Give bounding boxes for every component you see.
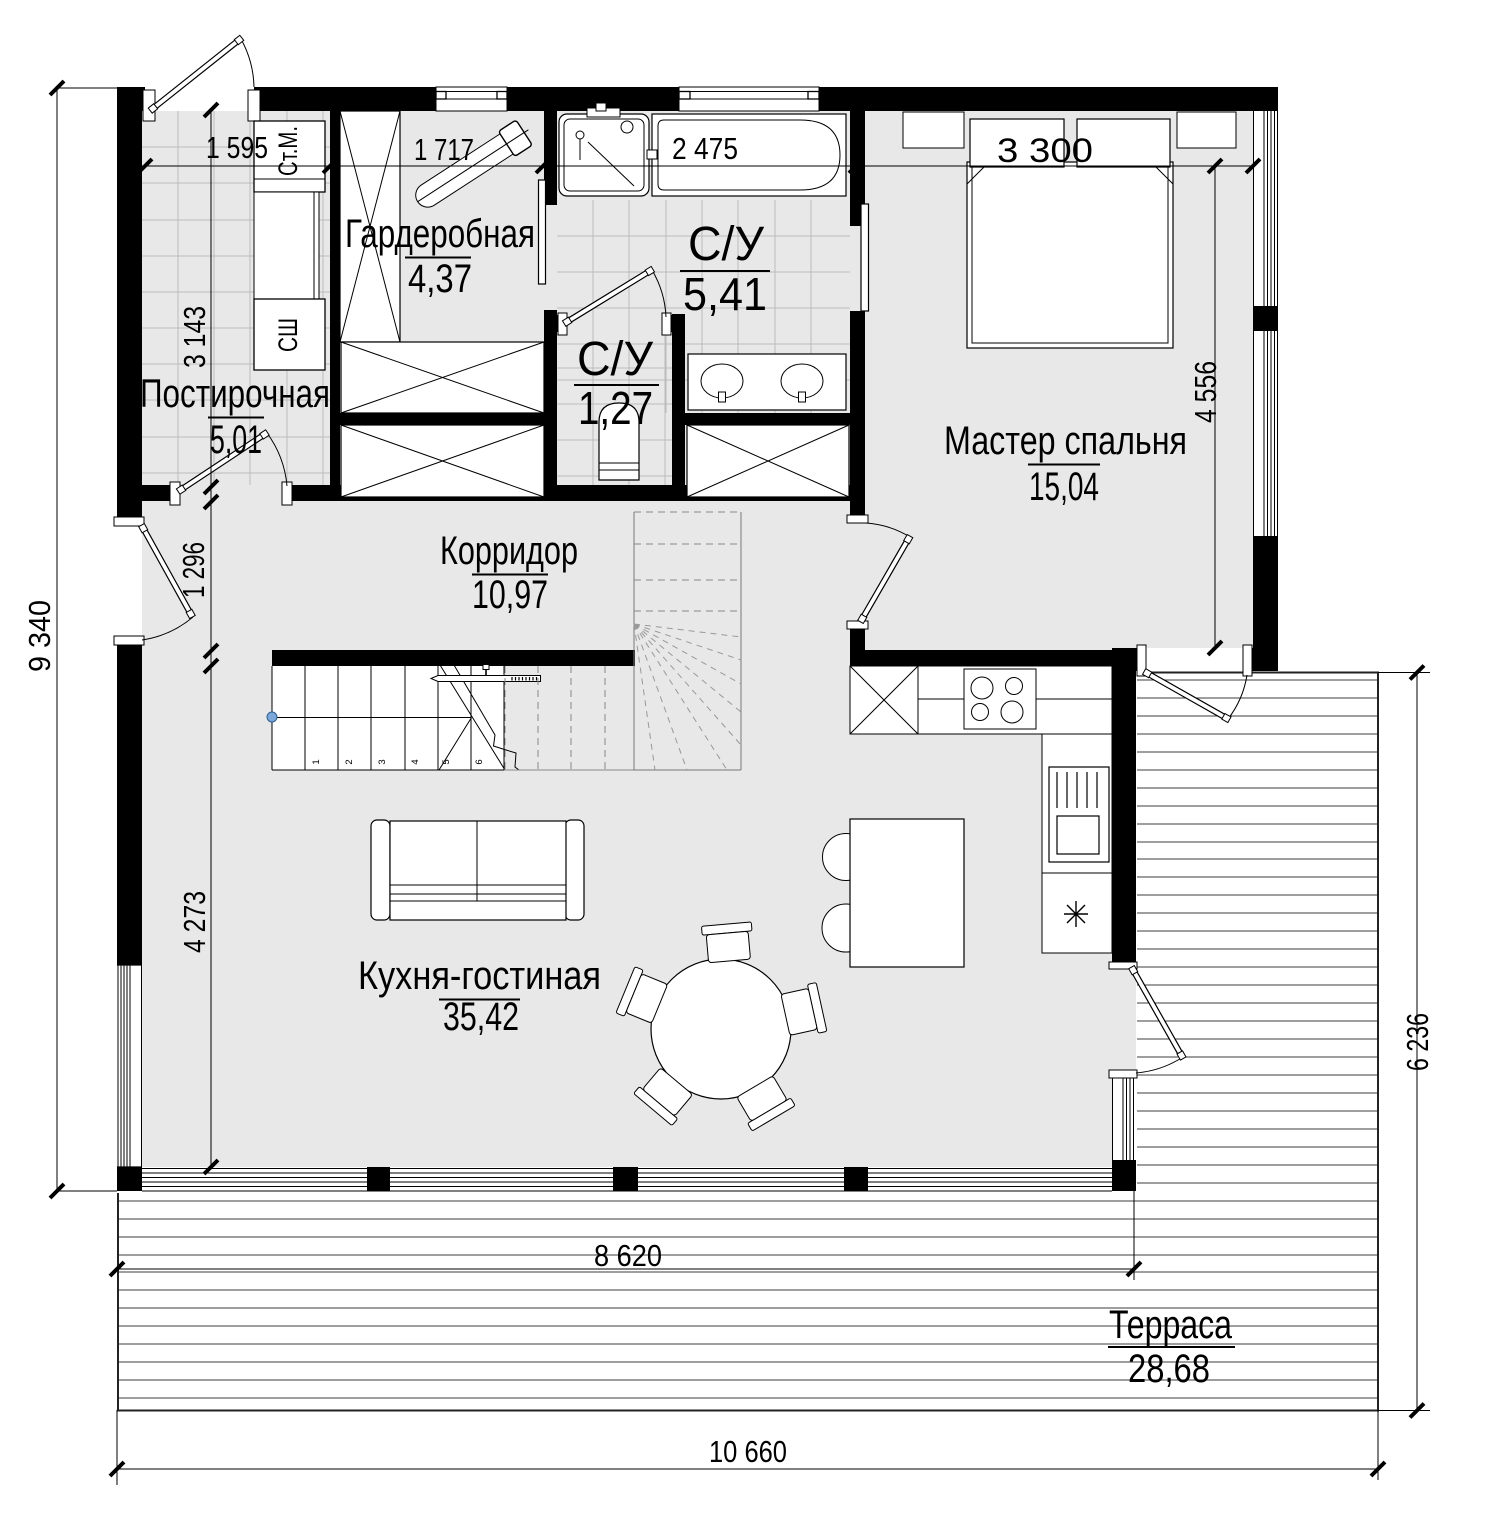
svg-text:15,04: 15,04 bbox=[1029, 465, 1099, 509]
svg-text:Терраса: Терраса bbox=[1109, 1303, 1233, 1347]
svg-text:2: 2 bbox=[344, 759, 355, 764]
svg-text:Ст.М.: Ст.М. bbox=[273, 126, 303, 176]
svg-text:5,41: 5,41 bbox=[683, 268, 767, 320]
svg-text:1 296: 1 296 bbox=[176, 542, 211, 598]
svg-text:Кухня-гостиная: Кухня-гостиная bbox=[358, 954, 601, 998]
svg-text:9 340: 9 340 bbox=[22, 600, 57, 672]
svg-text:1 717: 1 717 bbox=[414, 132, 474, 167]
svg-text:4,37: 4,37 bbox=[408, 257, 472, 301]
svg-text:3: 3 bbox=[377, 759, 388, 764]
svg-text:10 660: 10 660 bbox=[709, 1434, 787, 1469]
svg-text:Мастер спальня: Мастер спальня bbox=[944, 419, 1187, 463]
svg-text:Корридор: Корридор bbox=[440, 529, 578, 573]
svg-text:3 143: 3 143 bbox=[177, 306, 212, 368]
svg-text:Постирочная: Постирочная bbox=[140, 372, 330, 416]
svg-text:6 236: 6 236 bbox=[1400, 1013, 1435, 1071]
svg-text:1: 1 bbox=[311, 759, 322, 764]
svg-text:5: 5 bbox=[441, 759, 452, 764]
svg-text:Гардеробная: Гардеробная bbox=[345, 212, 535, 256]
svg-text:С/У: С/У bbox=[688, 218, 764, 271]
svg-text:СШ: СШ bbox=[273, 318, 303, 352]
svg-text:3 300: 3 300 bbox=[997, 132, 1093, 170]
svg-text:1 595: 1 595 bbox=[206, 130, 268, 165]
svg-text:6: 6 bbox=[474, 759, 485, 764]
svg-text:2 475: 2 475 bbox=[672, 131, 738, 166]
svg-text:28,68: 28,68 bbox=[1128, 1347, 1210, 1391]
svg-text:35,42: 35,42 bbox=[443, 995, 519, 1039]
svg-text:4: 4 bbox=[410, 759, 421, 764]
svg-text:5,01: 5,01 bbox=[210, 418, 262, 462]
svg-text:1,27: 1,27 bbox=[578, 382, 653, 434]
svg-text:С/У: С/У bbox=[577, 333, 653, 386]
svg-text:10,97: 10,97 bbox=[472, 573, 548, 617]
svg-text:8 620: 8 620 bbox=[594, 1238, 662, 1273]
svg-text:4 556: 4 556 bbox=[1188, 361, 1223, 423]
svg-text:4 273: 4 273 bbox=[177, 891, 212, 953]
